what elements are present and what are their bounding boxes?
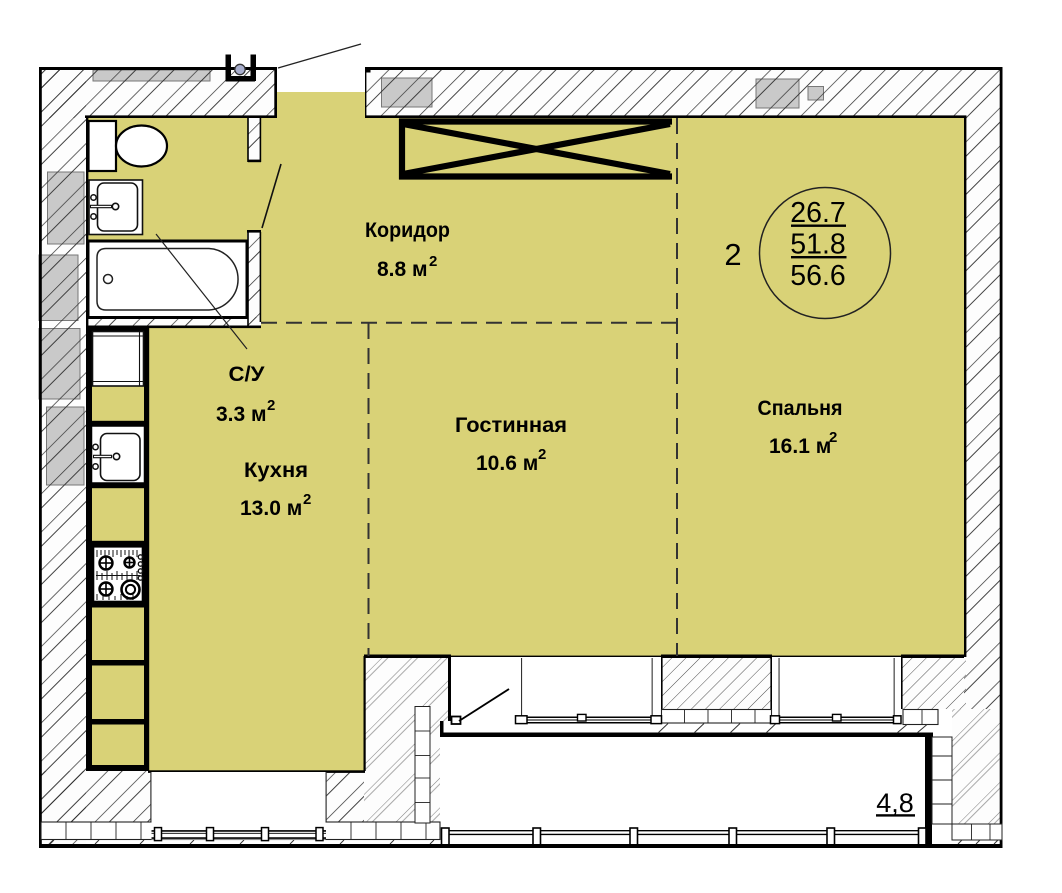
svg-text:56.6: 56.6 (790, 260, 845, 292)
svg-text:4,8: 4,8 (876, 788, 914, 818)
svg-text:16.1 м: 16.1 м (769, 435, 831, 458)
svg-text:2: 2 (829, 429, 837, 446)
svg-text:Гостинная: Гостинная (455, 414, 567, 437)
svg-text:Спальня: Спальня (758, 397, 843, 420)
svg-text:2: 2 (538, 446, 546, 463)
svg-text:26.7: 26.7 (790, 197, 845, 229)
svg-text:10.6 м: 10.6 м (476, 452, 538, 475)
svg-text:2: 2 (303, 491, 311, 508)
svg-text:Кухня: Кухня (244, 459, 308, 482)
svg-text:13.0 м: 13.0 м (240, 497, 302, 520)
svg-text:3.3 м: 3.3 м (216, 403, 267, 426)
svg-text:2: 2 (429, 253, 437, 270)
svg-text:8.8 м: 8.8 м (377, 258, 428, 281)
svg-text:Коридор: Коридор (365, 219, 450, 242)
svg-text:2: 2 (724, 237, 741, 272)
svg-text:51.8: 51.8 (790, 229, 845, 261)
svg-text:С/У: С/У (229, 363, 266, 386)
svg-text:2: 2 (267, 397, 275, 414)
